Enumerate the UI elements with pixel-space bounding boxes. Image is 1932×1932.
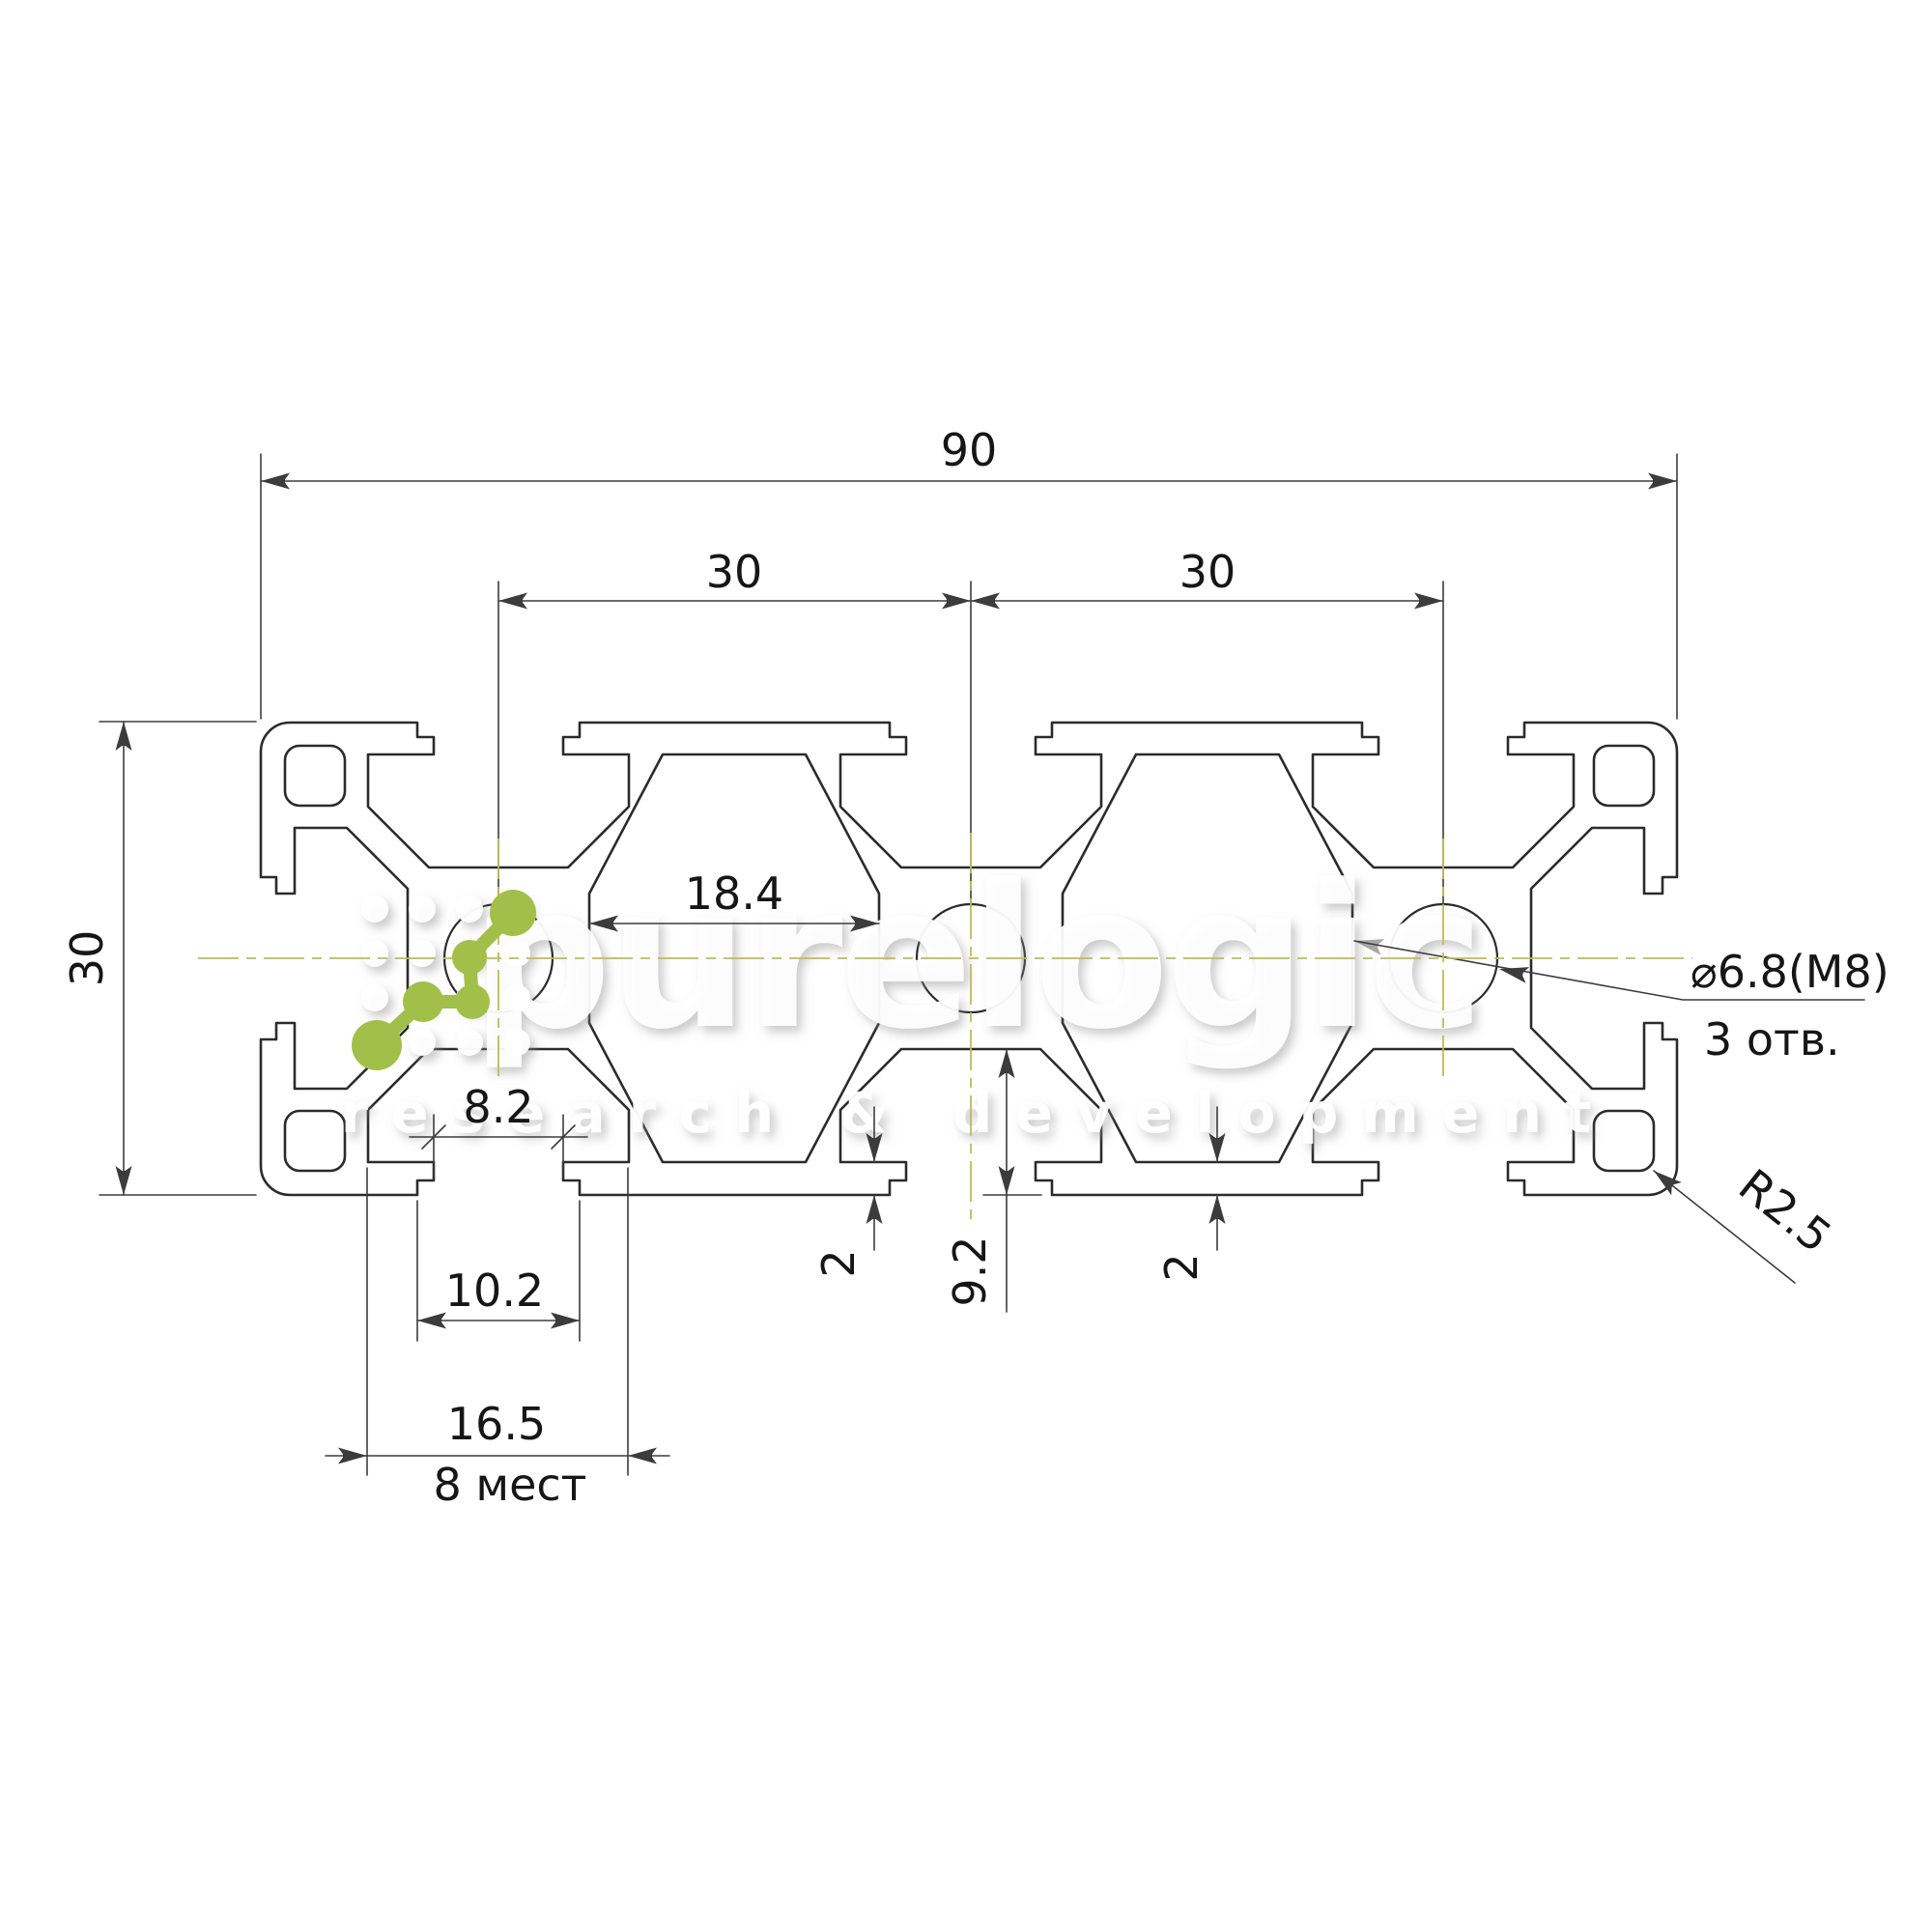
dim-slot-outer: 16.5 8 мест: [326, 1168, 669, 1511]
dim-pitch-right-label: 30: [1179, 546, 1236, 598]
corner-hole-top-left: [285, 746, 345, 806]
dim-slot-inner: 10.2: [417, 1201, 580, 1341]
dim-slot-outer-label: 16.5: [447, 1398, 546, 1450]
drawing-page: purelogic research & development 90 30 3…: [0, 0, 1932, 1932]
corner-hole-top-right: [1594, 746, 1654, 806]
dim-height-label: 30: [61, 930, 113, 987]
callout-hole-count-label: 3 отв.: [1704, 1013, 1840, 1065]
callout-corner-radius: R2.5: [1649, 1159, 1841, 1283]
callout-hole-diameter-label: ⌀6.8(M8): [1690, 946, 1889, 998]
dim-slot-depth-label: 9.2: [944, 1236, 996, 1306]
dim-total-width: 90: [261, 424, 1677, 719]
dim-slot-inner-label: 10.2: [445, 1264, 544, 1317]
dim-total-width-label: 90: [941, 424, 998, 476]
callout-corner-radius-label: R2.5: [1729, 1159, 1841, 1264]
dim-pitch-left-label: 30: [706, 546, 763, 598]
dim-wall-right-label: 2: [1155, 1253, 1207, 1281]
dim-slot-places-label: 8 мест: [434, 1459, 587, 1511]
dim-slot-mouth-label: 8.2: [463, 1081, 533, 1133]
corner-hole-bottom-left: [285, 1111, 345, 1171]
technical-drawing: purelogic research & development 90 30 3…: [0, 0, 1932, 1932]
dim-wall-left-label: 2: [812, 1249, 865, 1277]
dim-cavity-width-label: 18.4: [685, 867, 783, 920]
